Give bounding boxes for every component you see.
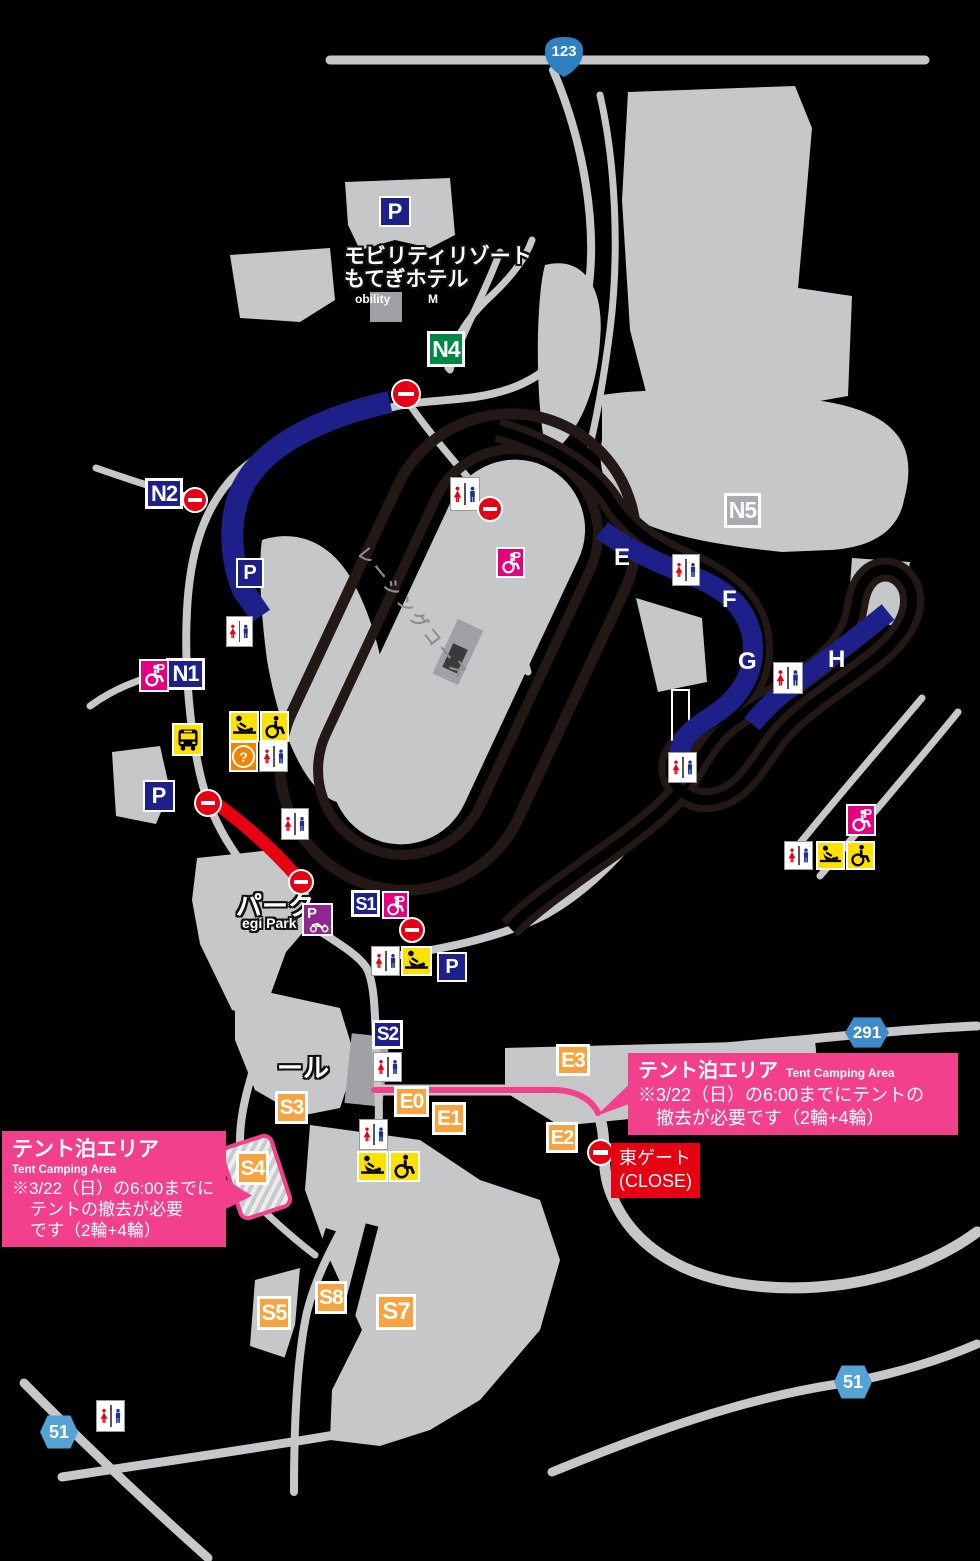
- tent-camping-callout-right: テント泊エリアTent Camping Area ※3/22（日）の6:00まで…: [628, 1053, 958, 1135]
- toilet-icon: [259, 741, 288, 772]
- wheelchair-icon: [846, 841, 875, 870]
- male-icon: [685, 755, 695, 780]
- toilet-icon: [359, 1119, 388, 1150]
- female-icon: [374, 949, 384, 973]
- no-entry-icon: [288, 869, 314, 895]
- track-section-e: E: [614, 544, 630, 572]
- female-icon: [99, 1403, 109, 1429]
- toilet-icon: [668, 752, 697, 783]
- parking-icon: P: [379, 196, 411, 227]
- gate-e1: E1: [432, 1102, 466, 1135]
- gate-s4: S4: [236, 1151, 269, 1185]
- tent-camping-callout-left: テント泊エリア Tent Camping Area ※3/22（日）の6:00ま…: [2, 1131, 226, 1247]
- baby-changing-icon: [816, 841, 845, 870]
- gate-s5: S5: [257, 1296, 291, 1330]
- accessible-parking-icon: P: [139, 659, 169, 692]
- toilet-icon: [96, 1400, 125, 1432]
- gate-s8: S8: [315, 1281, 347, 1314]
- male-icon: [390, 1055, 400, 1079]
- toilet-icon: [450, 477, 480, 511]
- female-icon: [376, 1055, 386, 1079]
- toilet-icon: [784, 841, 813, 870]
- gate-e3: E3: [556, 1044, 590, 1076]
- motegi-circuit-map: モビリティリゾート もてぎホテル obility M パーク egi Park …: [0, 0, 980, 1561]
- male-icon: [241, 619, 251, 644]
- motorcycle-icon: [309, 919, 330, 933]
- gate-n5: N5: [724, 493, 761, 528]
- hotel-label-line2: もてぎホテル: [344, 263, 469, 293]
- female-icon: [452, 481, 463, 508]
- no-entry-icon: [391, 379, 421, 409]
- no-entry-icon: [182, 487, 208, 513]
- baby-changing-icon: [401, 946, 432, 976]
- gate-n4: N4: [427, 331, 465, 367]
- accessible-parking-icon: P: [496, 547, 525, 578]
- gate-e2: E2: [546, 1122, 578, 1153]
- track-section-h: H: [828, 646, 845, 674]
- toilet-icon: [371, 946, 400, 976]
- parking-icon: P: [437, 952, 467, 982]
- toilet-icon: [672, 554, 700, 586]
- female-icon: [228, 619, 238, 644]
- parking-icon: P: [143, 780, 175, 812]
- no-entry-icon: [587, 1139, 614, 1166]
- accessible-parking-icon: P: [382, 891, 409, 919]
- female-icon: [362, 1122, 372, 1147]
- bus-stop-icon: [172, 723, 203, 756]
- gate-e0: E0: [394, 1086, 429, 1117]
- male-icon: [388, 949, 398, 973]
- no-entry-icon: [399, 917, 425, 943]
- motorcycle-parking-icon: P: [302, 903, 333, 936]
- toilet-icon: [281, 808, 309, 840]
- male-icon: [801, 844, 811, 867]
- female-icon: [283, 811, 293, 837]
- park-label-en: egi Park: [242, 915, 296, 931]
- male-icon: [688, 557, 698, 583]
- no-entry-icon: [194, 789, 222, 817]
- parking-icon: P: [236, 558, 264, 588]
- male-icon: [376, 1122, 386, 1147]
- female-icon: [671, 755, 681, 780]
- baby-changing-icon: [357, 1151, 388, 1182]
- male-icon: [467, 481, 478, 508]
- gate-s7: S7: [376, 1294, 416, 1330]
- toilet-icon: [226, 616, 253, 647]
- route-badge-123: 123: [544, 36, 584, 78]
- track-section-g: G: [738, 648, 757, 676]
- no-entry-icon: [477, 496, 503, 522]
- gate-s3: S3: [275, 1091, 308, 1124]
- hall-label-fragment: ール: [277, 1048, 329, 1085]
- male-icon: [276, 744, 286, 769]
- female-icon: [775, 665, 786, 691]
- female-icon: [674, 557, 684, 583]
- male-icon: [113, 1403, 123, 1429]
- female-icon: [787, 844, 797, 867]
- gate-s1: S1: [351, 890, 380, 917]
- female-icon: [262, 744, 272, 769]
- wheelchair-icon: [389, 1151, 420, 1182]
- east-gate-closed-label: 東ゲート (CLOSE): [611, 1143, 700, 1198]
- track-section-f: F: [722, 586, 737, 614]
- gate-n2: N2: [145, 478, 183, 509]
- male-icon: [790, 665, 801, 691]
- toilet-icon: [373, 1052, 402, 1082]
- baby-changing-icon: [229, 711, 259, 742]
- information-icon: ?: [229, 741, 258, 772]
- gate-n1: N1: [166, 658, 205, 690]
- hotel-label-en-fragment2: M: [428, 292, 438, 306]
- gate-s2: S2: [372, 1020, 403, 1049]
- accessible-parking-icon: P: [846, 804, 876, 836]
- hotel-label-en-fragment1: obility: [355, 292, 390, 306]
- male-icon: [297, 811, 307, 837]
- wheelchair-icon: [260, 711, 289, 742]
- toilet-icon: [773, 662, 803, 694]
